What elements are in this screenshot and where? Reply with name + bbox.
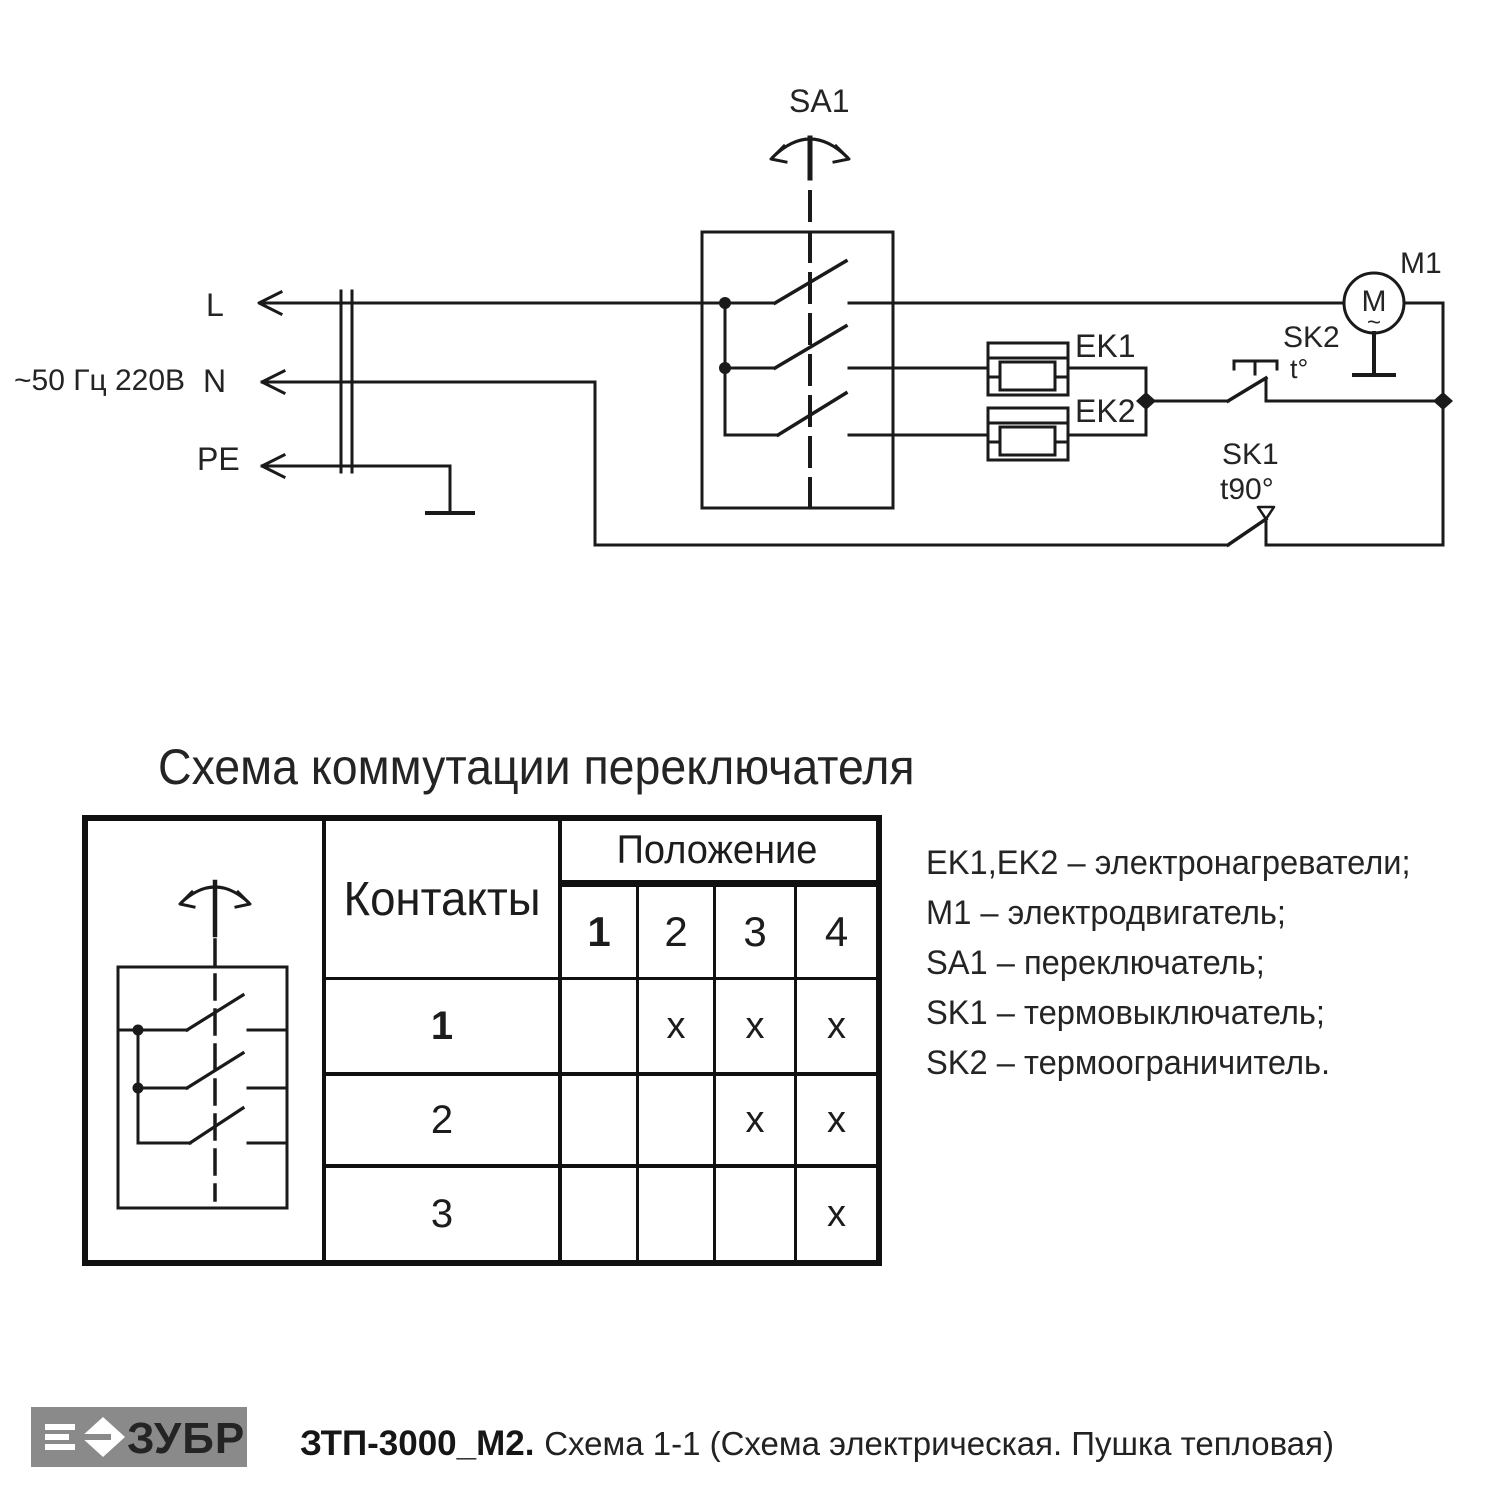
legend-item: M1 – электродвигатель; bbox=[926, 888, 1411, 938]
heater-ek1-symbol bbox=[988, 343, 1068, 395]
sk1-label: SK1 bbox=[1222, 438, 1279, 471]
mark-cell bbox=[562, 980, 636, 1072]
mark-cell: x bbox=[797, 1168, 876, 1260]
table-header-underline bbox=[558, 880, 876, 887]
feed-arrow-l-icon bbox=[259, 292, 775, 314]
junction-node bbox=[1433, 392, 1453, 410]
position-col-1: 1 bbox=[562, 887, 636, 977]
motor-label-m1: M1 bbox=[1400, 247, 1442, 280]
mark-cell bbox=[562, 1168, 636, 1260]
sk2-temp-label: t° bbox=[1290, 354, 1308, 384]
sk1-temp-label: t90° bbox=[1220, 473, 1274, 506]
legend-item: EK1,EK2 – электронагреватели; bbox=[926, 838, 1411, 888]
contact-row-label: 2 bbox=[326, 1076, 558, 1164]
brand-logo: ЗУБР bbox=[31, 1407, 247, 1467]
contact-row-label: 1 bbox=[326, 980, 558, 1072]
heater-ek2-symbol bbox=[988, 408, 1068, 460]
footer-model: ЗТП-3000_М2. bbox=[300, 1424, 534, 1463]
legend-item: SA1 – переключатель; bbox=[926, 938, 1411, 988]
switch-sa1-symbol bbox=[702, 138, 893, 508]
mark-cell bbox=[562, 1076, 636, 1164]
commutation-title: Схема коммутации переключателя bbox=[158, 738, 915, 796]
legend-item: SK2 – термоограничитель. bbox=[926, 1038, 1411, 1088]
mini-switch-symbol bbox=[88, 858, 328, 1228]
thermal-cutout-sk1-symbol bbox=[1228, 507, 1443, 545]
feed-arrow-pe-icon bbox=[262, 455, 473, 513]
mark-cell: x bbox=[716, 980, 794, 1072]
line-label-pe: PE bbox=[197, 441, 240, 477]
mark-cell: x bbox=[797, 1076, 876, 1164]
line-label-l: L bbox=[206, 287, 224, 323]
position-col-2: 2 bbox=[639, 887, 713, 977]
legend: EK1,EK2 – электронагреватели; M1 – элект… bbox=[926, 838, 1431, 1088]
legend-item: SK1 – термовыключатель; bbox=[926, 988, 1411, 1038]
line-label-n: N bbox=[203, 363, 226, 399]
power-label: ~50 Гц 220В bbox=[14, 364, 185, 397]
contact-row-label: 3 bbox=[326, 1168, 558, 1260]
heater-label-ek1: EK1 bbox=[1075, 328, 1135, 364]
mark-cell bbox=[639, 1168, 713, 1260]
footer-caption: ЗТП-3000_М2. Схема 1-1 (Схема электричес… bbox=[300, 1424, 1334, 1464]
sk2-label: SK2 bbox=[1283, 321, 1340, 354]
circuit-schematic: ~50 Гц 220В L N PE SA1 EK1 EK2 M1 M ~ SK… bbox=[0, 0, 1500, 660]
position-col-3: 3 bbox=[716, 887, 794, 977]
switch-label-sa1: SA1 bbox=[789, 83, 849, 119]
footer-description: Схема 1-1 (Схема электрическая. Пушка те… bbox=[544, 1425, 1334, 1462]
contacts-header: Контакты bbox=[332, 821, 552, 977]
brand-name: ЗУБР bbox=[127, 1414, 245, 1463]
mark-cell: x bbox=[716, 1076, 794, 1164]
junction-node bbox=[1136, 392, 1156, 410]
motor-wave: ~ bbox=[1367, 309, 1381, 336]
position-col-4: 4 bbox=[797, 887, 876, 977]
mark-cell: x bbox=[797, 980, 876, 1072]
heater-label-ek2: EK2 bbox=[1075, 393, 1135, 429]
mark-cell: x bbox=[639, 980, 713, 1072]
zubr-mark-slit bbox=[81, 1434, 111, 1440]
mark-cell bbox=[639, 1076, 713, 1164]
position-header: Положение bbox=[566, 821, 868, 880]
mark-cell bbox=[716, 1168, 794, 1260]
